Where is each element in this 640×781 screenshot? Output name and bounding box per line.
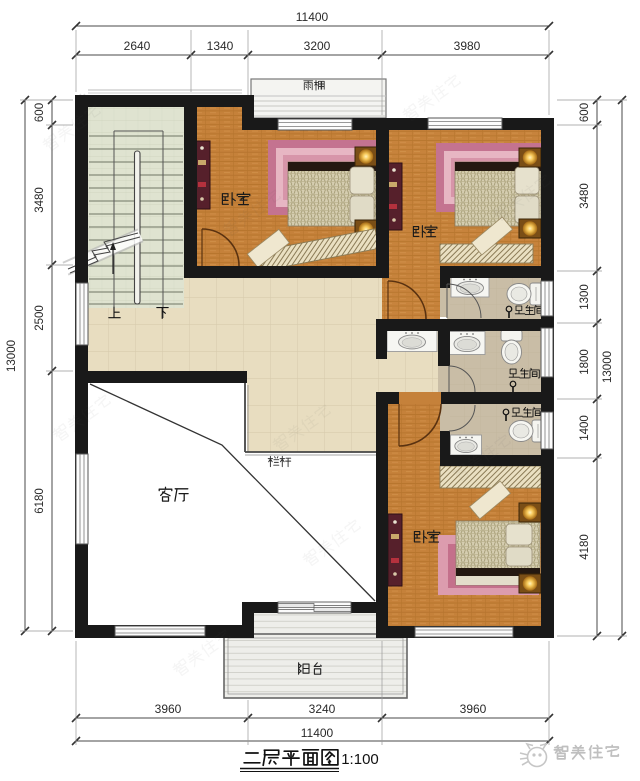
svg-text:3960: 3960 [155,702,182,716]
svg-text:1340: 1340 [207,39,234,53]
svg-text:1:100: 1:100 [341,751,379,768]
svg-text:1400: 1400 [579,415,591,441]
svg-text:4180: 4180 [579,534,591,560]
svg-text:3240: 3240 [309,702,336,716]
svg-text:600: 600 [579,103,591,122]
svg-text:3980: 3980 [454,39,481,53]
svg-text:2500: 2500 [34,305,46,331]
svg-text:6180: 6180 [34,488,46,514]
svg-text:3200: 3200 [304,39,331,53]
svg-text:13000: 13000 [6,340,18,372]
svg-text:3480: 3480 [579,183,591,209]
svg-text:11400: 11400 [301,726,334,740]
svg-text:11400: 11400 [296,10,329,24]
svg-text:3960: 3960 [460,702,487,716]
svg-text:13000: 13000 [602,351,614,383]
svg-text:600: 600 [34,103,46,122]
svg-text:2640: 2640 [124,39,151,53]
svg-text:1300: 1300 [579,284,591,310]
svg-text:3480: 3480 [34,187,46,213]
svg-text:1800: 1800 [579,349,591,375]
